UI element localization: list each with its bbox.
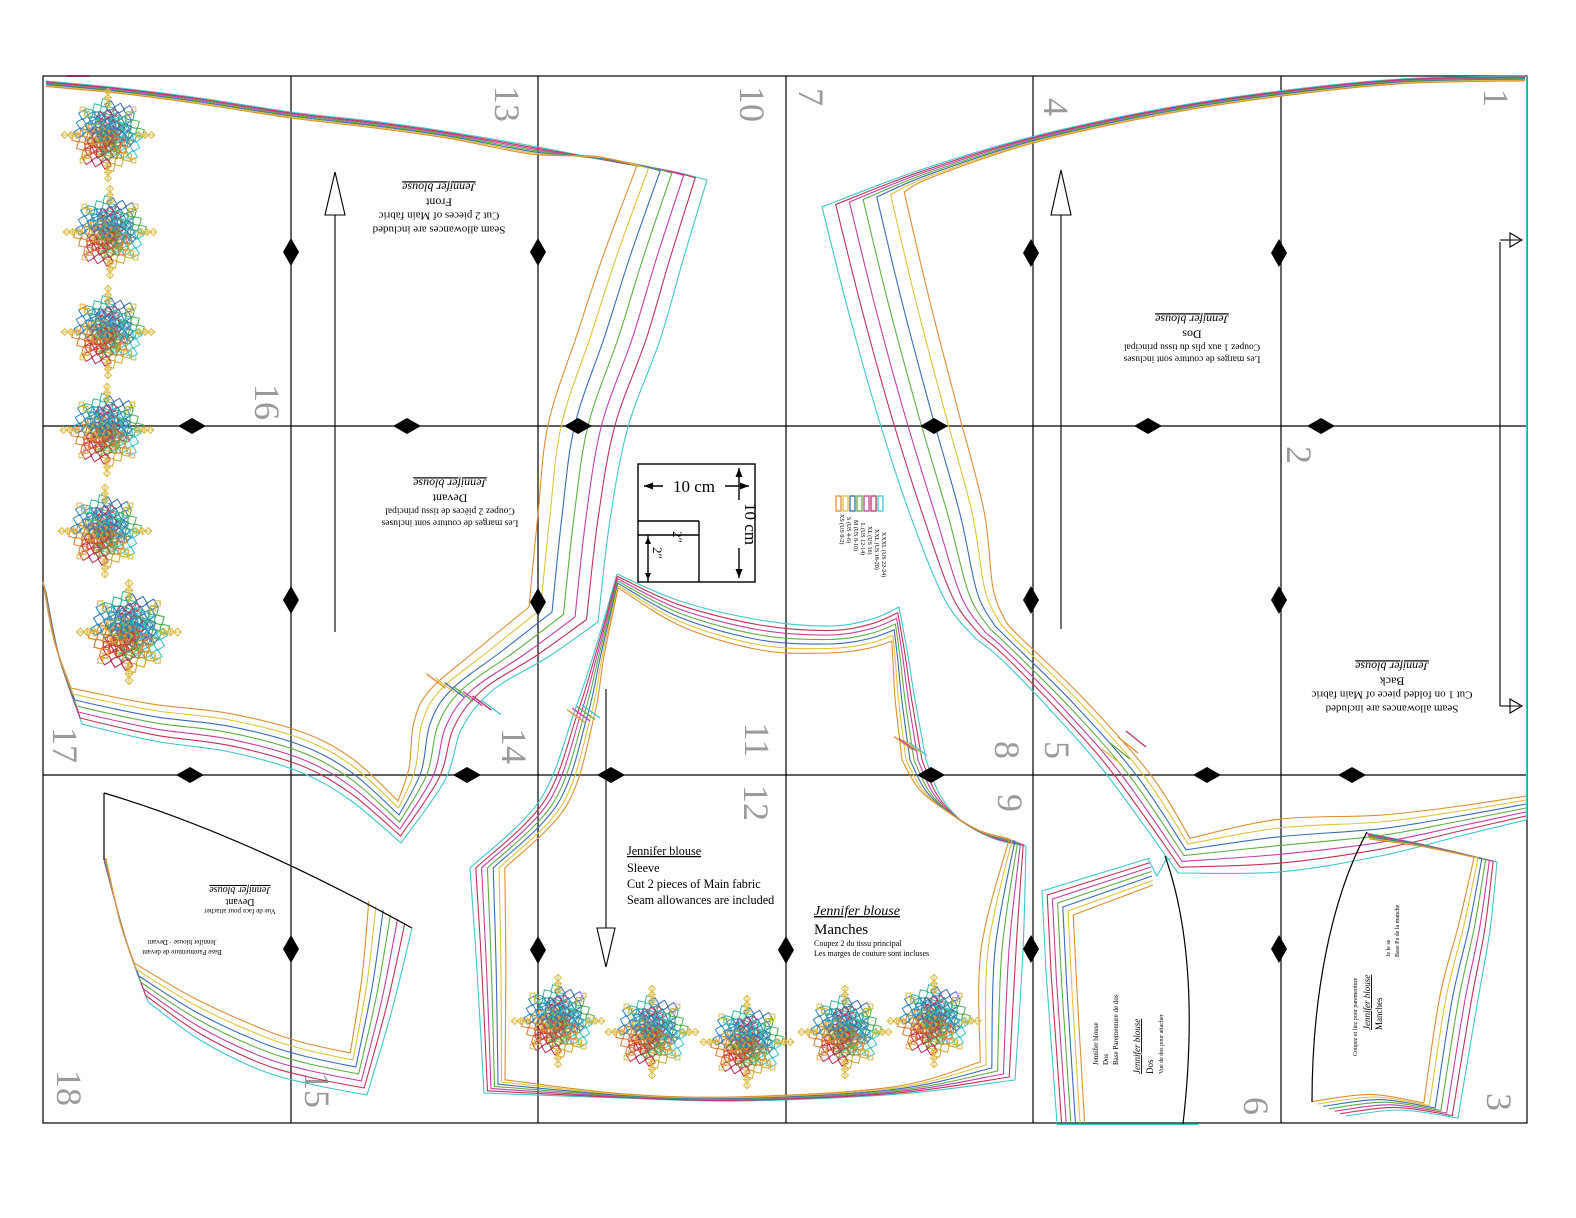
svg-text:Cut 2 pieces of Main fabric: Cut 2 pieces of Main fabric [627, 877, 761, 891]
svg-text:10: 10 [732, 86, 772, 122]
svg-text:Manches: Manches [1374, 997, 1384, 1030]
svg-text:Seam allowances are included: Seam allowances are included [627, 893, 774, 907]
svg-text:12: 12 [736, 785, 776, 821]
svg-text:Dos: Dos [1145, 1059, 1155, 1074]
svg-text:Back: Back [1380, 675, 1405, 689]
svg-text:Les marges de couture sont inc: Les marges de couture sont incluses [381, 518, 518, 528]
svg-text:XXXL (US 22-24): XXXL (US 22-24) [880, 532, 887, 577]
svg-text:Jennifer blouse: Jennifer blouse [413, 477, 487, 491]
svg-text:Jennifer blouse: Jennifer blouse [1132, 1019, 1142, 1074]
svg-text:Devant: Devant [432, 492, 467, 506]
svg-text:10 cm: 10 cm [673, 477, 715, 496]
svg-text:Jennifer blouse: Jennifer blouse [209, 884, 271, 895]
svg-text:15: 15 [297, 1072, 337, 1108]
svg-text:Vue de face pour attacher: Vue de face pour attacher [204, 907, 276, 915]
svg-text:Dos: Dos [1102, 1053, 1110, 1065]
svg-text:8: 8 [987, 741, 1027, 759]
svg-text:14: 14 [494, 728, 534, 764]
svg-text:Jennifer blouse: Jennifer blouse [1155, 313, 1229, 327]
svg-text:5: 5 [1037, 741, 1077, 759]
svg-text:Jennifer blouse: Jennifer blouse [627, 844, 701, 858]
svg-text:L (US 12-14): L (US 12-14) [859, 523, 866, 555]
svg-text:Je le se: Je le se [1386, 939, 1392, 957]
svg-text:16: 16 [247, 384, 287, 420]
svg-text:Jennifer blouse: Jennifer blouse [1355, 660, 1429, 674]
svg-text:2: 2 [1279, 446, 1319, 464]
svg-text:18: 18 [49, 1070, 89, 1106]
svg-text:Dos: Dos [1182, 328, 1202, 342]
svg-text:Devant: Devant [225, 896, 254, 907]
svg-text:Coupez 1 aux plis du tissu pri: Coupez 1 aux plis du tissu principal [1124, 342, 1261, 352]
svg-text:Cut 2 pieces of Main fabric: Cut 2 pieces of Main fabric [379, 210, 500, 222]
svg-text:Jennifer blouse: Jennifer blouse [1092, 1022, 1100, 1065]
svg-text:4: 4 [1036, 98, 1076, 116]
svg-text:Coupez 2 du tissu principal: Coupez 2 du tissu principal [814, 939, 902, 948]
svg-text:Coupez et liez pour parementur: Coupez et liez pour parementure [1353, 977, 1359, 1056]
svg-text:Jennifer blouse: Jennifer blouse [814, 904, 900, 919]
svg-text:Vue de dos pour attacher: Vue de dos pour attacher [1159, 1014, 1165, 1074]
svg-text:Seam allowances are included: Seam allowances are included [372, 224, 505, 236]
svg-text:Front: Front [425, 196, 452, 210]
svg-text:Base Pa de la manche: Base Pa de la manche [1395, 904, 1401, 957]
svg-text:Jennifer blouse: Jennifer blouse [402, 181, 476, 195]
svg-text:Seam allowances are included: Seam allowances are included [1325, 703, 1458, 715]
svg-text:M (US 8-10): M (US 8-10) [852, 520, 859, 551]
svg-text:S (US 4-6): S (US 4-6) [845, 517, 852, 543]
svg-text:Les marges de couture sont inc: Les marges de couture sont incluses [1123, 354, 1260, 364]
svg-text:2″: 2″ [650, 547, 665, 559]
svg-text:Base Parementure de dos: Base Parementure de dos [1112, 994, 1120, 1065]
svg-text:XS (US 0-2): XS (US 0-2) [838, 514, 845, 544]
svg-text:2″: 2″ [670, 531, 685, 543]
svg-text:Les marges de couture sont inc: Les marges de couture sont incluses [814, 949, 929, 958]
svg-text:10 cm: 10 cm [741, 503, 760, 545]
svg-text:Jennifer blouse · Devant: Jennifer blouse · Devant [148, 938, 217, 946]
svg-text:17: 17 [45, 727, 85, 763]
svg-text:Jennifer blouse: Jennifer blouse [1362, 975, 1372, 1030]
svg-text:13: 13 [487, 86, 527, 122]
svg-text:11: 11 [737, 723, 777, 758]
svg-text:Manches: Manches [814, 922, 868, 938]
svg-text:XXL (US 18-20): XXL (US 18-20) [873, 529, 880, 570]
svg-text:Base Parementure de devant: Base Parementure de devant [142, 948, 222, 956]
svg-text:6: 6 [1236, 1097, 1276, 1115]
svg-text:7: 7 [791, 88, 831, 106]
svg-text:Coupez 2 pièces de tissu princ: Coupez 2 pièces de tissu principal [385, 506, 515, 516]
svg-text:1: 1 [1476, 89, 1516, 107]
svg-text:XL (US 16): XL (US 16) [866, 526, 873, 554]
svg-text:Cut 1 on folded piece of Main: Cut 1 on folded piece of Main fabric [1311, 689, 1472, 701]
svg-text:9: 9 [990, 794, 1030, 812]
svg-text:Sleeve: Sleeve [627, 861, 660, 875]
svg-text:3: 3 [1479, 1093, 1519, 1111]
